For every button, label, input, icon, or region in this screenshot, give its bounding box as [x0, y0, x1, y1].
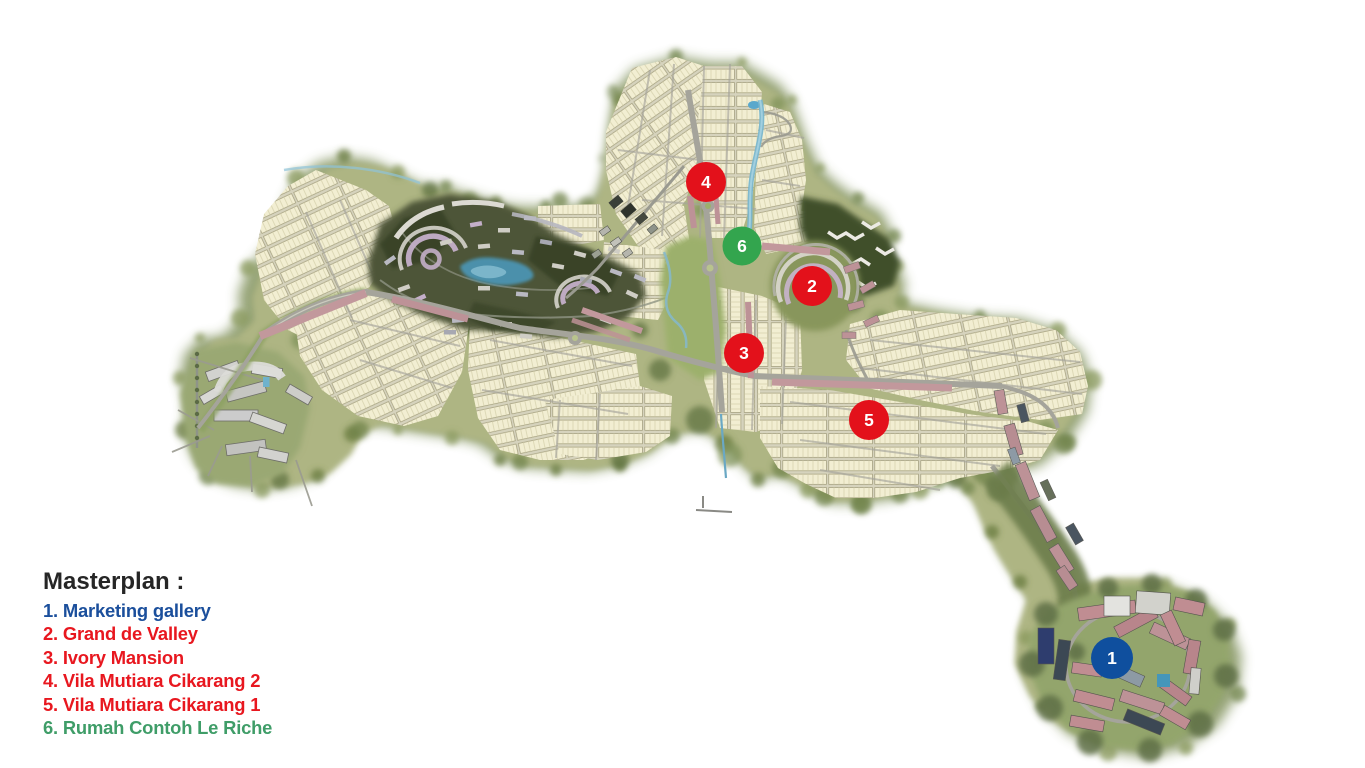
svg-text:1: 1 — [1107, 648, 1117, 668]
svg-text:2: 2 — [807, 276, 817, 296]
svg-text:4: 4 — [701, 172, 711, 192]
svg-text:3: 3 — [739, 343, 749, 363]
svg-text:6: 6 — [737, 236, 747, 256]
svg-text:5: 5 — [864, 410, 874, 430]
